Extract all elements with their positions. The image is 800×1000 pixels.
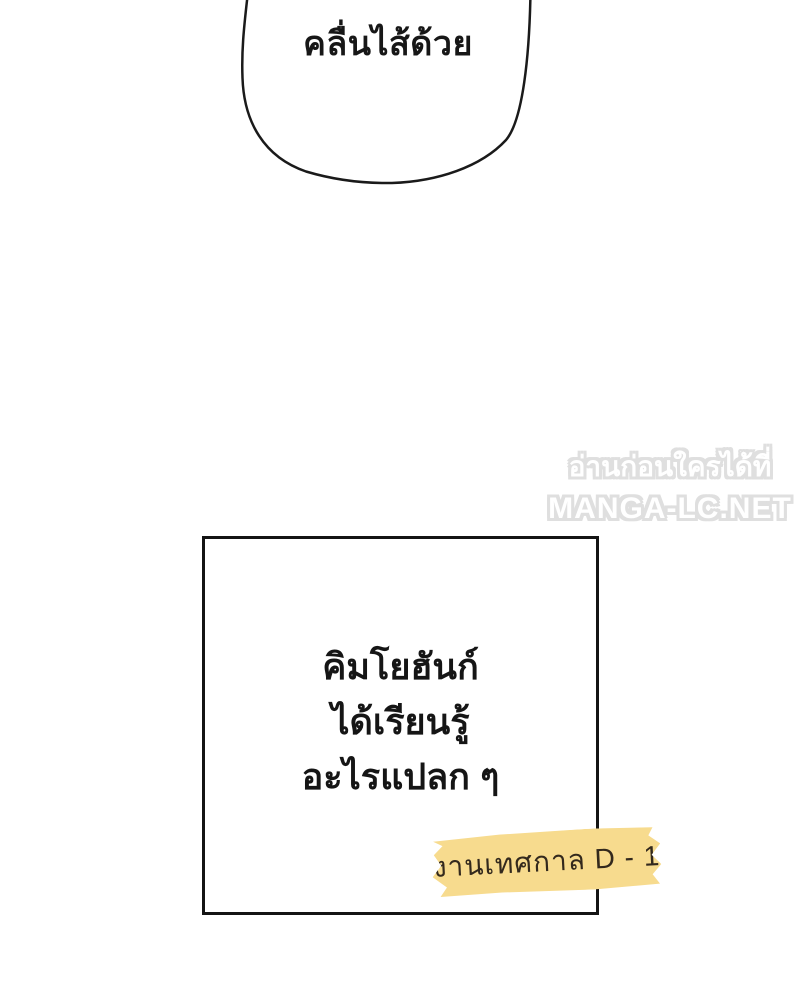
site-watermark: อ่านก่อนใครได้ที่ MANGA-LC.NET [538, 452, 800, 525]
narration-line-3: อะไรแปลก ๆ [302, 749, 500, 804]
narration-line-1: คิมโยฮันก์ [302, 639, 500, 694]
narration-line-2: ได้เรียนรู้ [302, 694, 500, 749]
speech-bubble-text: คลื่นไส้ด้วย [240, 16, 536, 70]
watermark-tagline: อ่านก่อนใครได้ที่ [538, 452, 800, 483]
watermark-site-name: MANGA-LC.NET [538, 492, 800, 525]
tape-note-text: งานเทศกาล D - 1 [432, 834, 662, 890]
narration-text: คิมโยฮันก์ ได้เรียนรู้ อะไรแปลก ๆ [302, 639, 500, 804]
